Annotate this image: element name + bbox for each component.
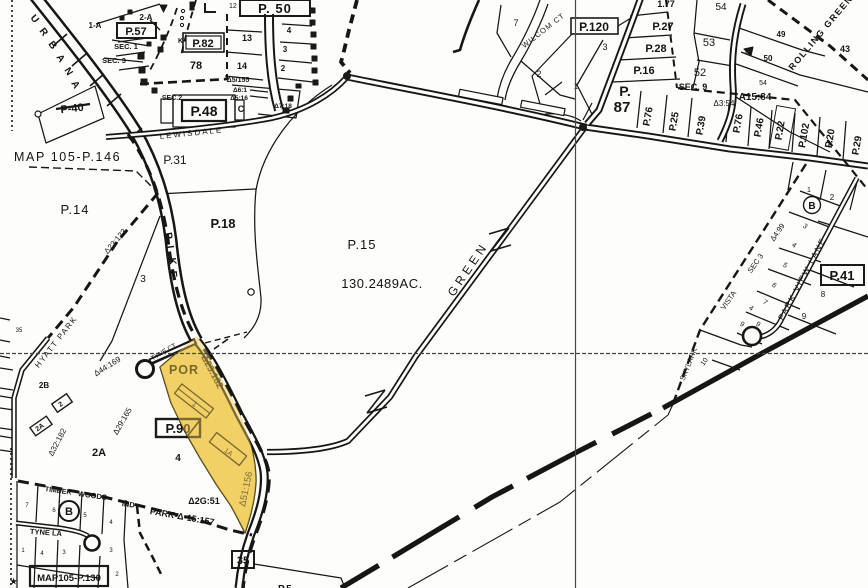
svg-text:P.31: P.31 (163, 153, 186, 167)
svg-text:P.41: P.41 (829, 268, 854, 283)
svg-text:14: 14 (237, 61, 247, 71)
svg-text:A15:84: A15:84 (739, 92, 772, 103)
svg-text:53: 53 (703, 37, 715, 49)
svg-text:87: 87 (614, 99, 631, 116)
svg-text:9: 9 (802, 312, 807, 321)
svg-text:54: 54 (759, 80, 767, 87)
svg-text:C: C (238, 104, 245, 114)
svg-text:49: 49 (777, 30, 786, 39)
svg-text:1: 1 (574, 82, 579, 91)
svg-text:IND: IND (121, 499, 136, 510)
svg-text:2A: 2A (92, 447, 106, 459)
svg-text:35: 35 (16, 328, 23, 334)
svg-text:4: 4 (287, 26, 292, 35)
svg-text:MAP105-P.130: MAP105-P.130 (37, 573, 101, 584)
svg-text:1-A: 1-A (89, 21, 102, 30)
svg-text:P.27: P.27 (652, 21, 673, 33)
svg-text:35: 35 (237, 555, 249, 567)
svg-text:P.120: P.120 (579, 20, 609, 34)
svg-text:43: 43 (840, 44, 850, 54)
svg-text:SEC.2: SEC.2 (162, 95, 182, 102)
svg-text:1.77: 1.77 (657, 0, 675, 9)
svg-text:130.2489AC.: 130.2489AC. (341, 276, 422, 291)
svg-text:Δ3:54: Δ3:54 (714, 99, 735, 108)
svg-text:★: ★ (10, 577, 18, 586)
svg-text:P.: P. (619, 83, 630, 99)
svg-text:Δ5:16: Δ5:16 (230, 95, 248, 102)
svg-text:4: 4 (744, 50, 748, 57)
svg-text:12: 12 (229, 3, 237, 10)
svg-text:P.5: P.5 (278, 584, 292, 588)
svg-text:3: 3 (602, 42, 607, 52)
svg-text:P.16: P.16 (633, 65, 654, 77)
svg-text:Δ7:18: Δ7:18 (274, 103, 292, 110)
svg-text:E: E (167, 270, 178, 278)
svg-text:2: 2 (830, 193, 835, 202)
svg-text:3: 3 (140, 274, 146, 285)
svg-text:Δ5/155: Δ5/155 (227, 77, 250, 84)
svg-text:P.14: P.14 (60, 202, 89, 217)
svg-text:P.82: P.82 (192, 38, 213, 50)
svg-text:P.57: P.57 (125, 26, 146, 38)
svg-text:3: 3 (283, 45, 288, 54)
svg-text:7: 7 (513, 18, 518, 28)
svg-text:1: 1 (807, 187, 811, 194)
svg-text:B: B (65, 506, 73, 518)
svg-text:P. 50: P. 50 (258, 1, 292, 16)
svg-text:2B: 2B (39, 381, 49, 390)
svg-text:78: 78 (190, 60, 202, 72)
svg-text:2-A: 2-A (140, 13, 153, 22)
svg-text:P.18: P.18 (210, 216, 235, 231)
svg-text:13: 13 (242, 33, 252, 43)
svg-text:52: 52 (694, 67, 706, 79)
svg-text:SEC. 1: SEC. 1 (114, 42, 138, 51)
svg-text:SEC. 3: SEC. 3 (102, 56, 126, 65)
svg-text:2: 2 (281, 64, 286, 73)
svg-text:P.15: P.15 (347, 237, 376, 252)
svg-text:K: K (178, 38, 183, 45)
svg-text:2: 2 (536, 69, 541, 79)
svg-text:Δ2G:51: Δ2G:51 (188, 496, 219, 506)
svg-text:B: B (808, 201, 815, 212)
svg-text:54: 54 (715, 2, 727, 13)
svg-text:P.28: P.28 (645, 43, 666, 55)
svg-text:P.48: P.48 (191, 103, 218, 119)
svg-text:SEC. 9: SEC. 9 (679, 82, 708, 92)
svg-text:50: 50 (764, 54, 773, 63)
svg-text:Δ6:1: Δ6:1 (233, 87, 247, 94)
svg-text:MAP 105-P.146: MAP 105-P.146 (14, 150, 121, 164)
svg-text:4: 4 (175, 453, 181, 464)
svg-text:8: 8 (821, 290, 826, 299)
